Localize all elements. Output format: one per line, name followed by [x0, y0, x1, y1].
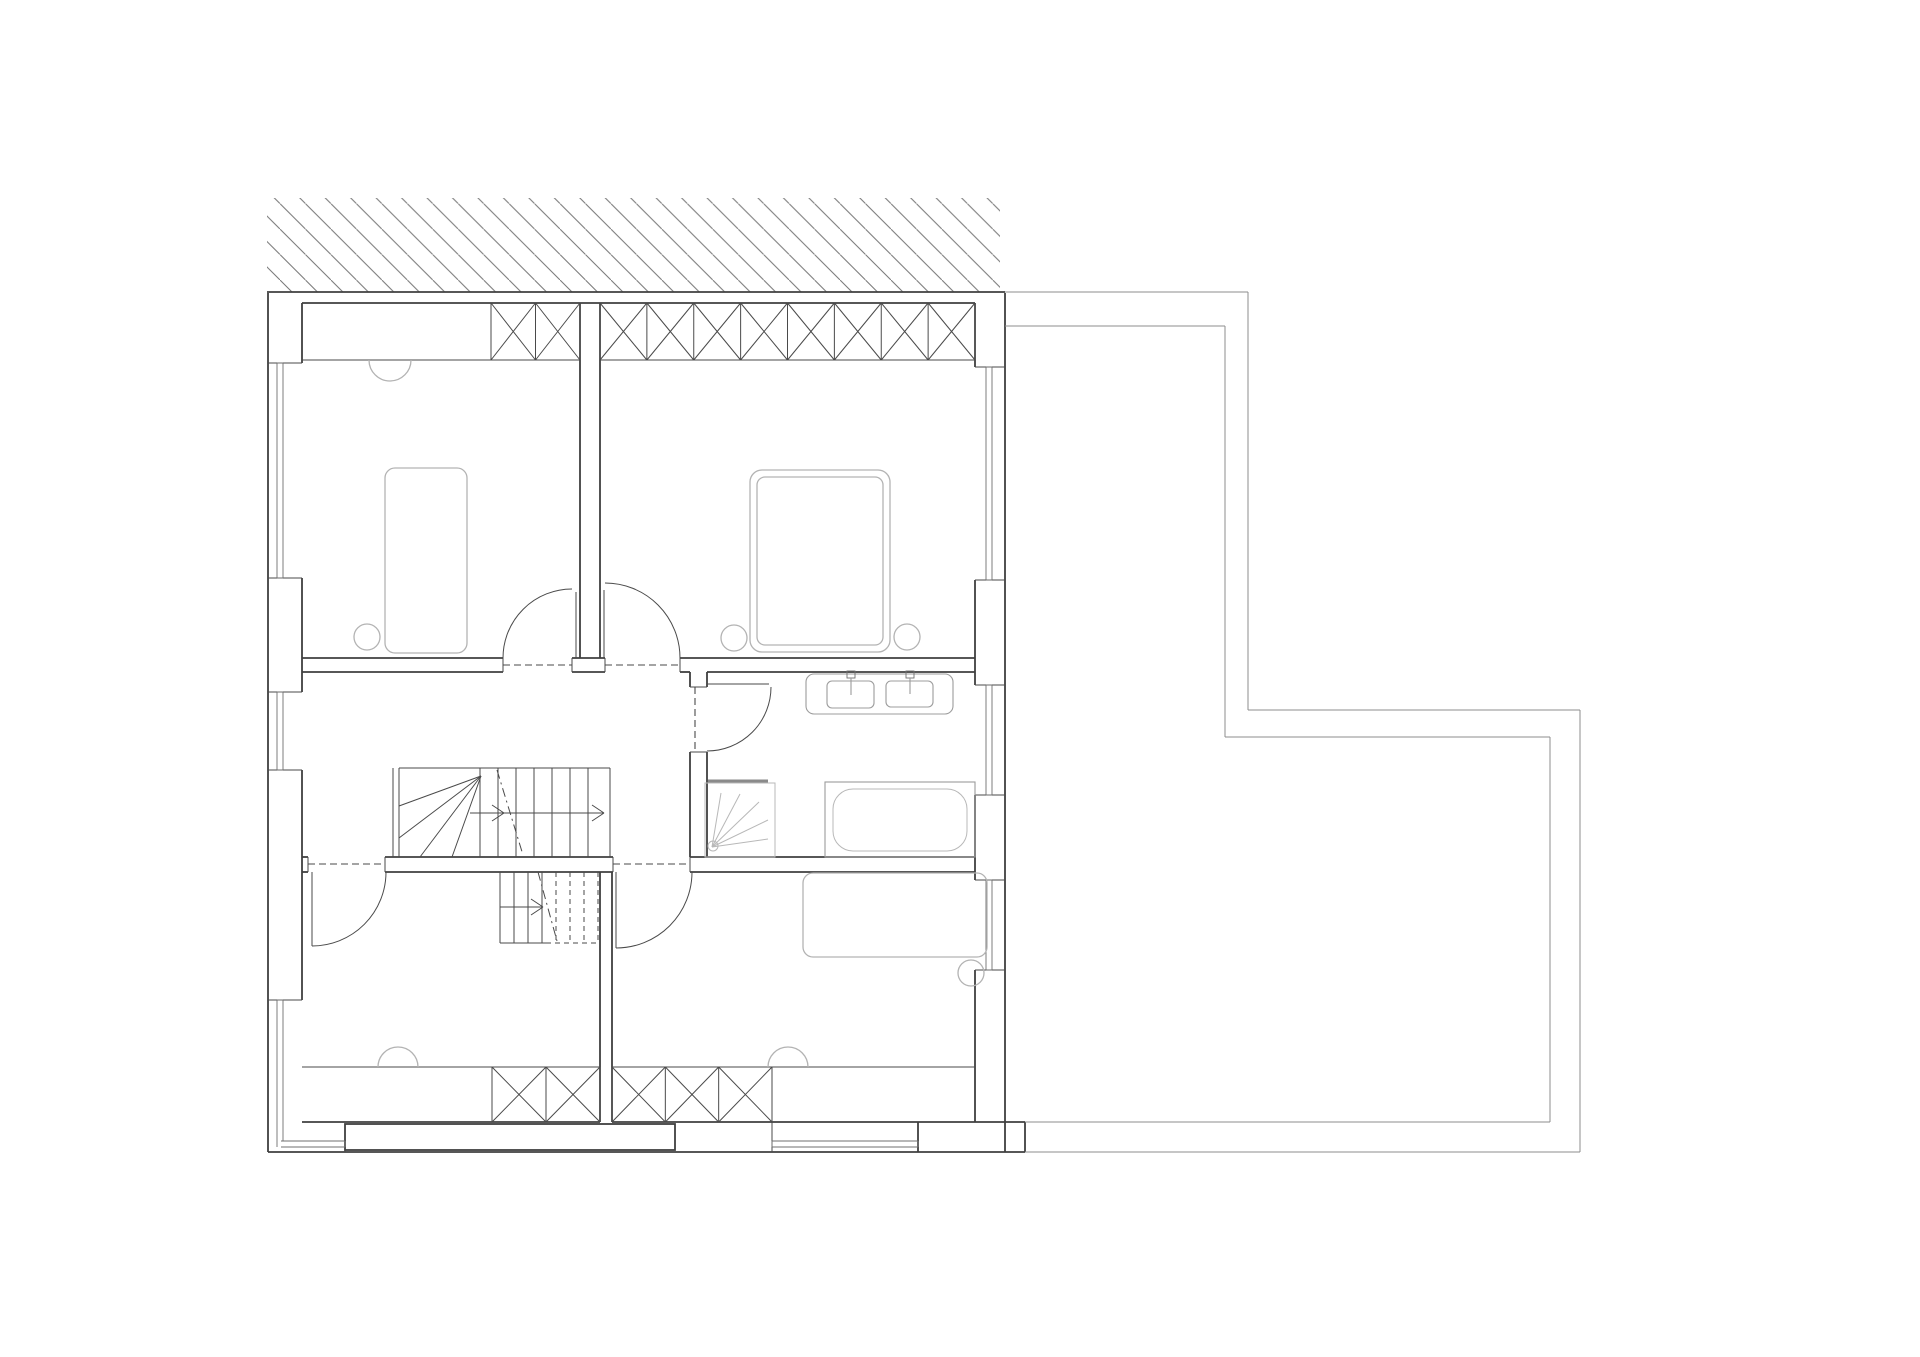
opening-dashes [308, 665, 695, 864]
interior-walls [302, 303, 975, 1122]
floor-plan-page [0, 0, 1920, 1357]
window-glazing [277, 363, 992, 1147]
wardrobe-room-4 [612, 1067, 772, 1122]
stair-lower [500, 872, 598, 943]
wardrobe-bedroom-2 [600, 303, 975, 360]
wardrobe-room-3 [492, 1067, 600, 1122]
terrace [1005, 292, 1580, 1152]
bathroom-fixtures [705, 671, 975, 857]
wardrobe-bedroom-1 [491, 303, 580, 360]
exterior-walls [267, 292, 1025, 1152]
stair-upper [393, 768, 610, 857]
roof-hatch [267, 198, 1000, 292]
floor-plan-drawing [0, 0, 1920, 1357]
